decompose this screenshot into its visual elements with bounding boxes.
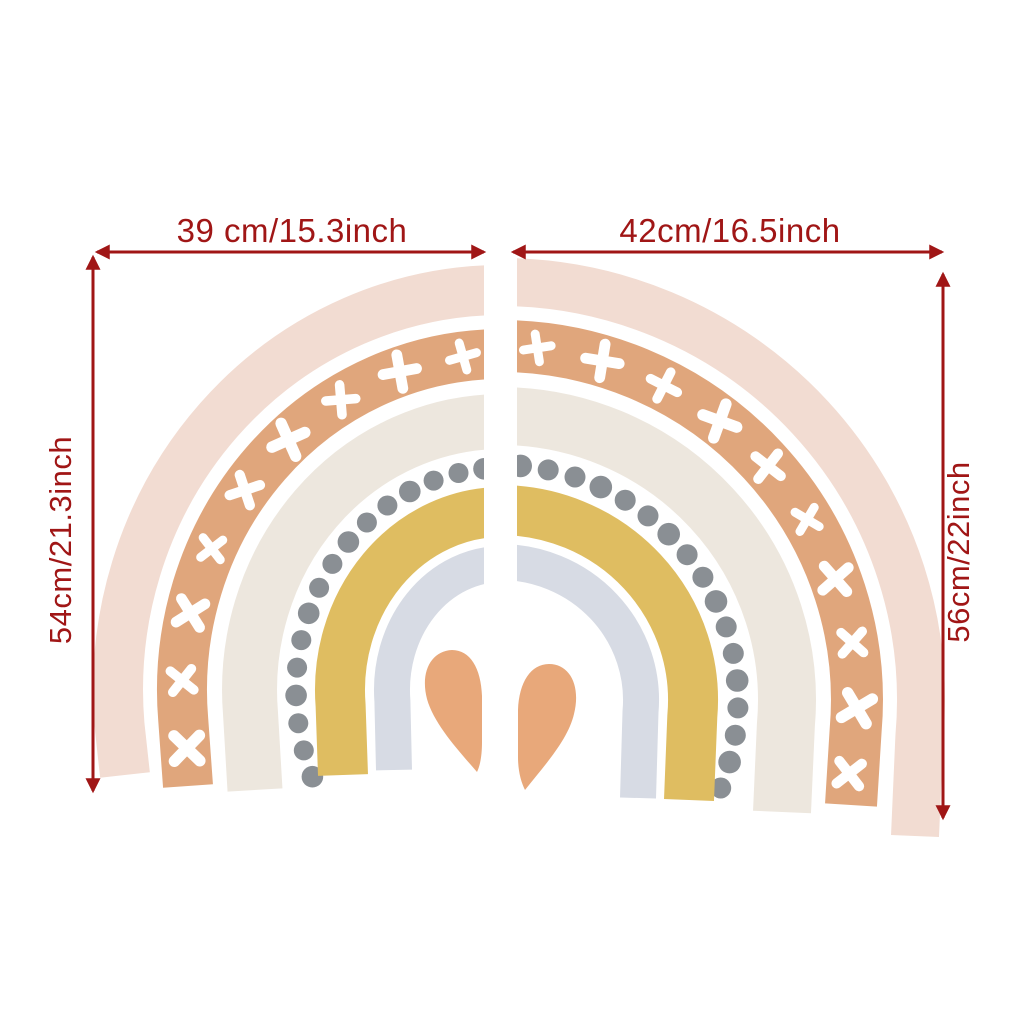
gray-dot [590, 476, 613, 499]
gray-dot [338, 531, 360, 553]
dimension-top-left: 39 cm/15.3inch [97, 212, 484, 252]
gray-dot [449, 463, 469, 483]
heart-left-half [425, 650, 482, 772]
gray-dot [725, 725, 746, 746]
rainbow-left-half [118, 290, 502, 790]
gray-dot [615, 490, 636, 511]
rainbow-right-half [500, 282, 921, 836]
gray-dot [727, 697, 748, 718]
gray-dot [473, 458, 495, 480]
gray-dot [291, 630, 311, 650]
dimension-right-height-label: 56cm/22inch [941, 461, 976, 642]
gray-dot [424, 471, 444, 491]
dimension-top-right-label: 42cm/16.5inch [619, 212, 840, 249]
gray-dot [285, 685, 307, 707]
gray-dot [309, 578, 329, 598]
gray-dot [322, 554, 342, 574]
heart-right-half [518, 664, 576, 790]
gray-dot [298, 603, 320, 625]
dimension-left-height-label: 54cm/21.3inch [43, 436, 78, 644]
gray-dot [565, 467, 586, 488]
gray-dot [377, 496, 397, 516]
dimension-left-height: 54cm/21.3inch [43, 257, 93, 791]
gray-dot [716, 616, 737, 637]
gray-dot [399, 481, 421, 503]
gray-dot [692, 567, 713, 588]
gray-dot [726, 669, 749, 692]
product-dimension-diagram: 39 cm/15.3inch 42cm/16.5inch 54cm/21.3in… [0, 0, 1024, 1024]
dimension-top-left-label: 39 cm/15.3inch [177, 212, 408, 249]
gray-dot [287, 658, 307, 678]
gray-dot [294, 740, 314, 760]
gray-dot [705, 590, 728, 613]
gray-dot [723, 643, 744, 664]
gray-dot [288, 713, 308, 733]
gray-dot [538, 459, 559, 480]
gray-dot [509, 455, 532, 478]
gray-dot [657, 523, 680, 546]
gray-dot [357, 513, 377, 533]
gray-dot [677, 544, 698, 565]
rainbow-decal-figure: 39 cm/15.3inch 42cm/16.5inch 54cm/21.3in… [0, 0, 1024, 1024]
gray-dot [638, 505, 659, 526]
dimension-top-right: 42cm/16.5inch [513, 212, 942, 252]
gray-dot [718, 751, 741, 774]
dimension-right-height: 56cm/22inch [941, 274, 976, 818]
